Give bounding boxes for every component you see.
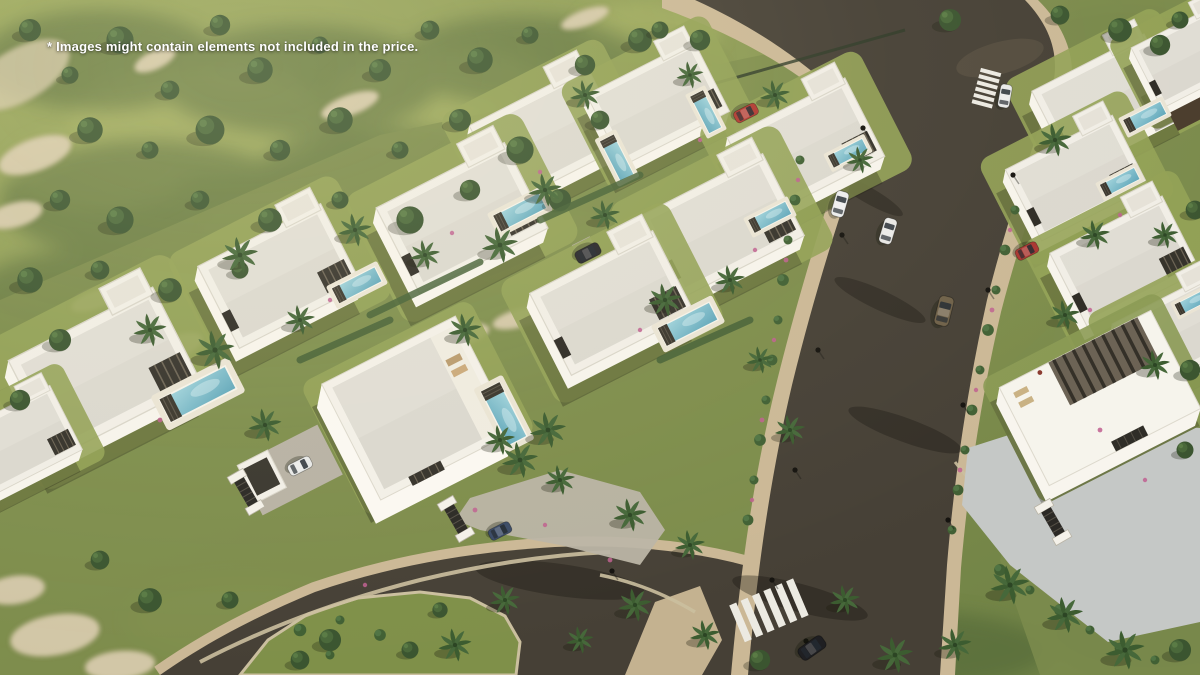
- bush: [774, 316, 783, 325]
- bush: [1151, 656, 1160, 665]
- bush: [796, 156, 805, 165]
- bush: [790, 195, 801, 206]
- bush: [1026, 586, 1035, 595]
- bush: [784, 236, 793, 245]
- bush: [326, 651, 335, 660]
- price-disclaimer-watermark: * Images might contain elements not incl…: [47, 39, 418, 54]
- bush: [762, 396, 771, 405]
- bush: [961, 446, 970, 455]
- bush: [336, 616, 345, 625]
- bush: [294, 624, 307, 637]
- bush: [374, 629, 386, 641]
- bush: [1000, 245, 1011, 256]
- bush: [777, 274, 789, 286]
- bush: [976, 366, 985, 375]
- bush: [754, 434, 766, 446]
- bush: [953, 485, 964, 496]
- bush: [994, 564, 1006, 576]
- bush: [992, 286, 1001, 295]
- bush: [982, 324, 994, 336]
- bush: [1086, 626, 1095, 635]
- render-canvas: [0, 0, 1200, 675]
- aerial-render-image: * Images might contain elements not incl…: [0, 0, 1200, 675]
- bush: [1011, 206, 1020, 215]
- bush: [743, 515, 754, 526]
- bush: [750, 476, 759, 485]
